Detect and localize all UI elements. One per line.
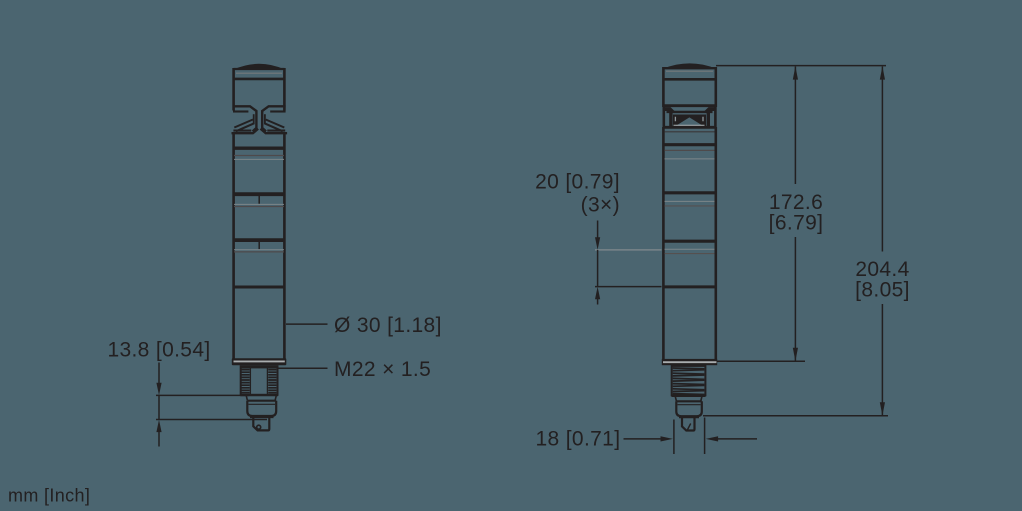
svg-text:mm [Inch]: mm [Inch] (8, 486, 90, 506)
svg-text:[8.05]: [8.05] (855, 279, 910, 302)
svg-text:[6.79]: [6.79] (769, 212, 824, 235)
svg-text:M22 × 1.5: M22 × 1.5 (334, 358, 431, 381)
svg-text:13.8 [0.54]: 13.8 [0.54] (107, 338, 210, 361)
svg-text:20 [0.79]: 20 [0.79] (535, 170, 620, 193)
svg-text:Ø 30 [1.18]: Ø 30 [1.18] (334, 314, 442, 337)
svg-text:18 [0.71]: 18 [0.71] (536, 427, 621, 450)
svg-text:(3×): (3×) (581, 193, 620, 216)
svg-text:204.4: 204.4 (855, 258, 909, 281)
